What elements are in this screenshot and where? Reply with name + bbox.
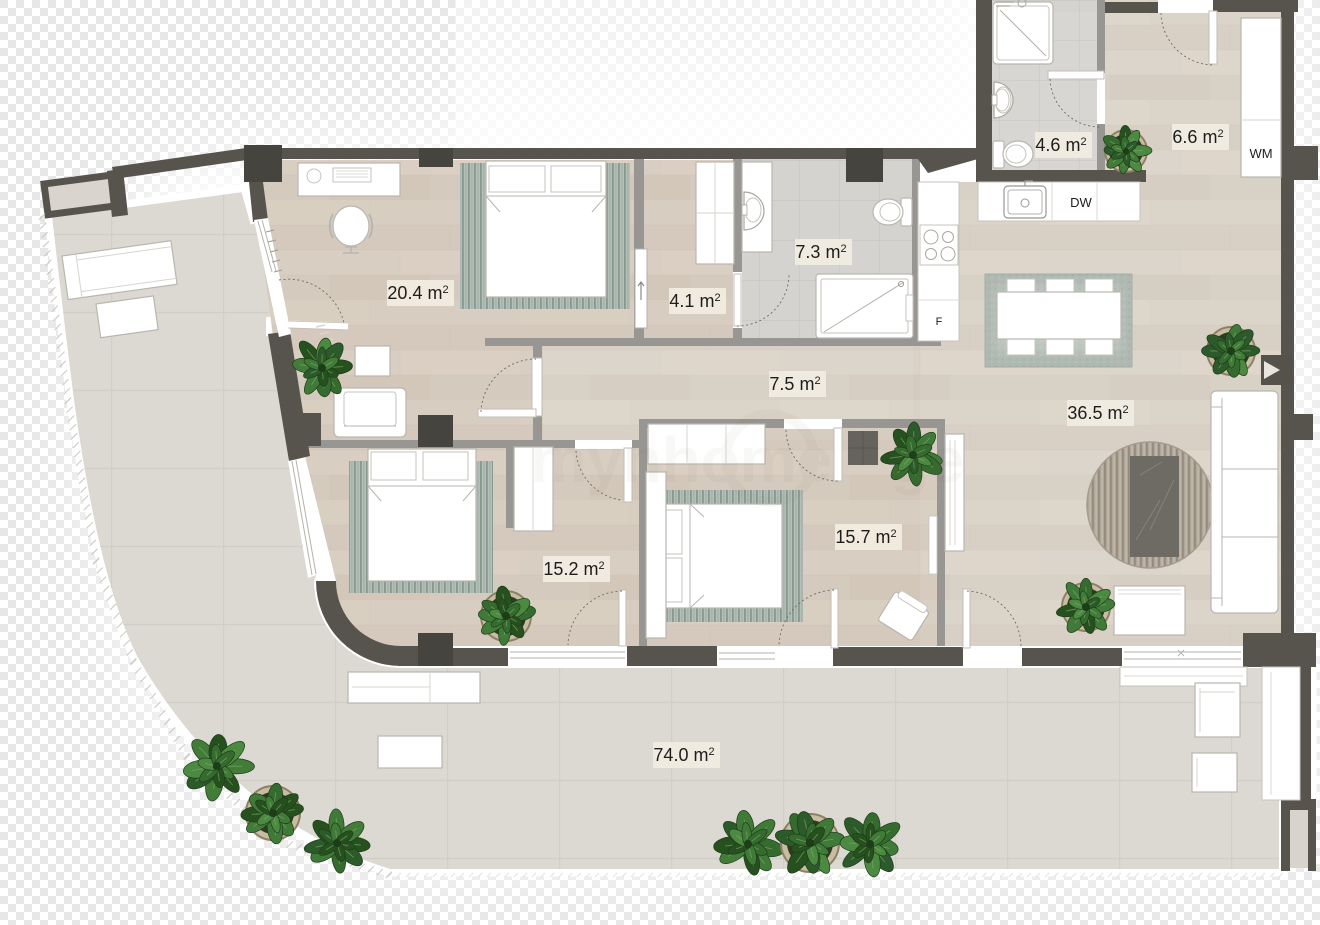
svg-text:ge: ge <box>890 424 965 496</box>
svg-text:mynhome: mynhome <box>530 424 832 496</box>
svg-text:F: F <box>936 316 943 328</box>
svg-text:7.3 m2: 7.3 m2 <box>795 242 846 262</box>
svg-text:15.7 m2: 15.7 m2 <box>835 527 896 547</box>
svg-text:DW: DW <box>1070 195 1092 210</box>
svg-text:20.4 m2: 20.4 m2 <box>387 283 448 303</box>
svg-text:WM: WM <box>1249 146 1272 161</box>
svg-text:7.5 m2: 7.5 m2 <box>769 374 820 394</box>
svg-text:36.5 m2: 36.5 m2 <box>1067 403 1128 423</box>
svg-text:4.6 m2: 4.6 m2 <box>1035 135 1086 155</box>
svg-text:74.0 m2: 74.0 m2 <box>653 745 714 765</box>
svg-text:15.2 m2: 15.2 m2 <box>543 559 604 579</box>
svg-text:4.1 m2: 4.1 m2 <box>669 291 720 311</box>
svg-text:6.6 m2: 6.6 m2 <box>1172 127 1223 147</box>
